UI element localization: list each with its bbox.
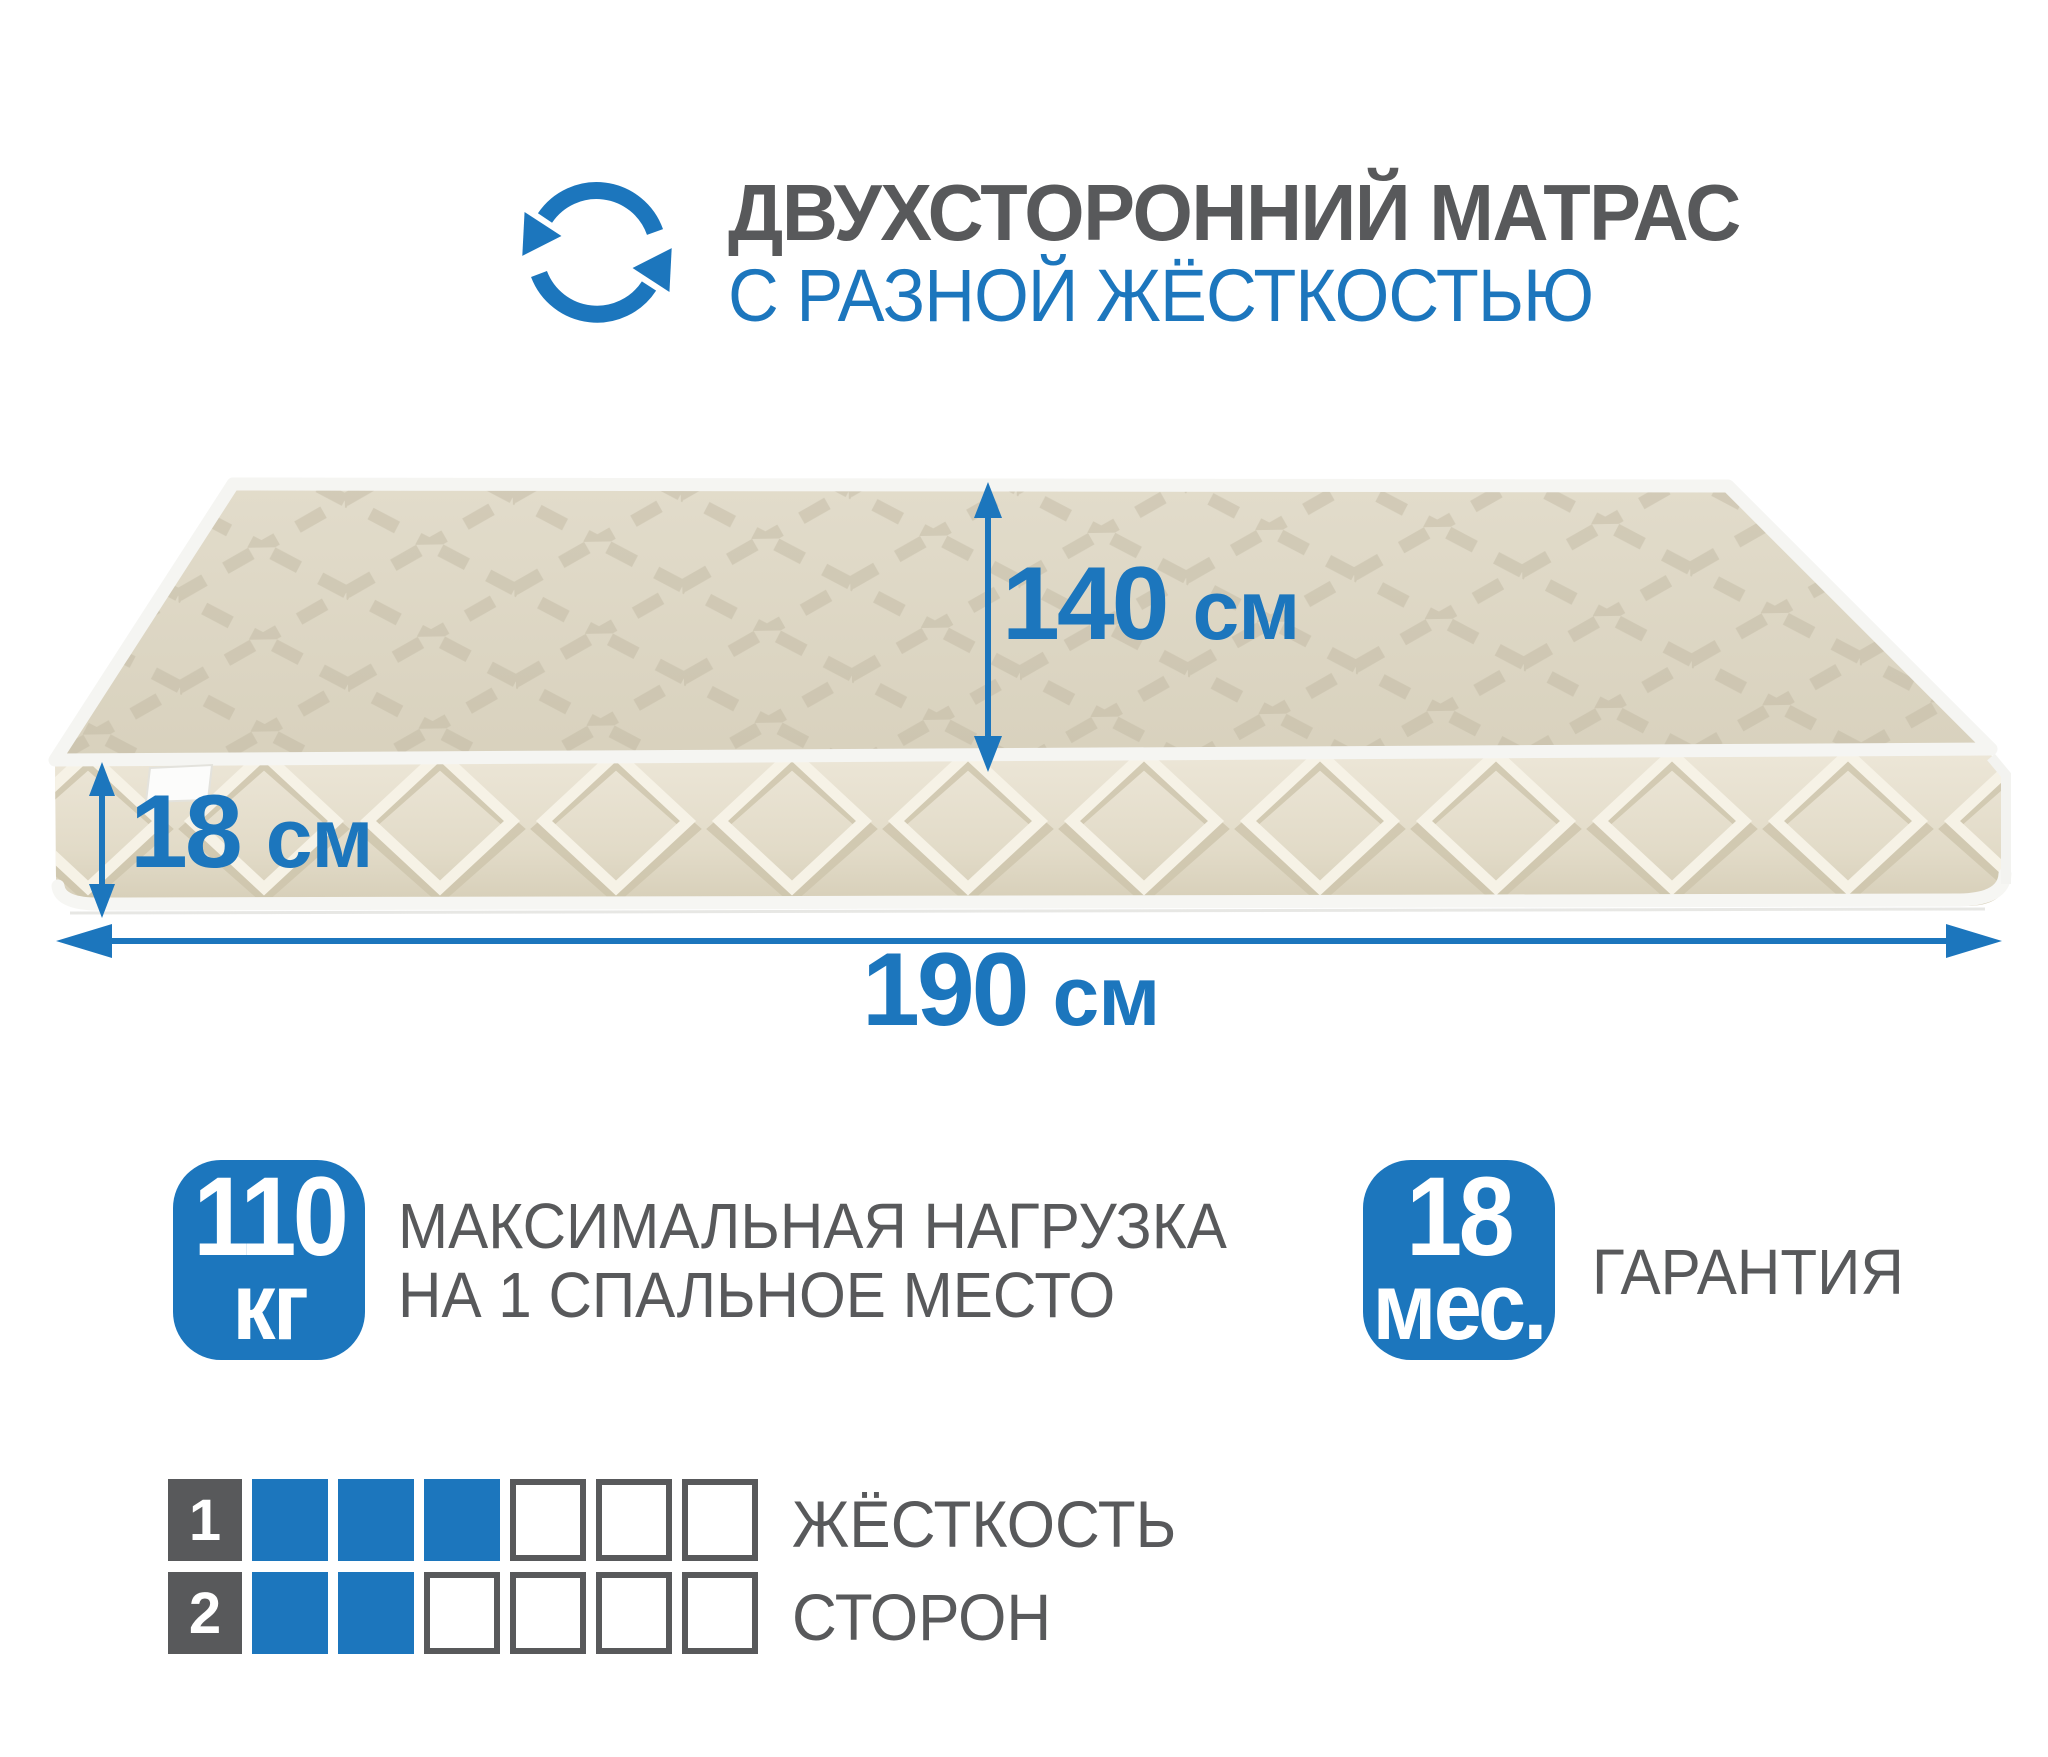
firmness-side-number: 1 [168,1479,242,1561]
max-load-badge: 110 кг [173,1160,365,1360]
firmness-row-side-2: 2 [168,1572,758,1654]
length-dimension-label: 190 см [862,926,1159,1054]
warranty-value: 18 [1373,1170,1545,1264]
length-unit: см [1053,948,1160,1045]
page-title: ДВУХСТОРОННИЙ МАТРАС [728,170,1740,256]
firmness-cell-empty [596,1572,672,1654]
width-unit: см [1193,562,1300,659]
height-unit: см [266,790,373,887]
firmness-cell-empty [682,1572,758,1654]
warranty-badge: 18 мес. [1363,1160,1555,1360]
firmness-row-side-1: 1 [168,1479,758,1561]
rotate-icon [505,172,690,332]
firmness-cell-filled [252,1479,328,1561]
width-dimension-label: 140 см [1002,540,1299,668]
firmness-cell-filled [252,1572,328,1654]
firmness-cells [252,1479,758,1561]
firmness-cells [252,1572,758,1654]
firmness-side-number: 2 [168,1572,242,1654]
width-value: 140 [1002,540,1167,668]
firmness-cell-empty [596,1479,672,1561]
max-load-value: 110 [193,1170,345,1264]
firmness-cell-empty [424,1572,500,1654]
page-subtitle: С РАЗНОЙ ЖЁСТКОСТЬЮ [728,256,1719,336]
header: ДВУХСТОРОННИЙ МАТРАС С РАЗНОЙ ЖЁСТКОСТЬЮ [728,170,1771,336]
firmness-cell-empty [510,1479,586,1561]
warranty-label: ГАРАНТИЯ [1592,1238,1904,1307]
firmness-cell-empty [682,1479,758,1561]
firmness-cell-filled [338,1572,414,1654]
firmness-cell-filled [338,1479,414,1561]
height-dimension-label: 18 см [130,768,373,896]
max-load-label: МАКСИМАЛЬНАЯ НАГРУЗКА НА 1 СПАЛЬНОЕ МЕСТ… [398,1192,1227,1330]
mattress-infographic: ДВУХСТОРОННИЙ МАТРАС С РАЗНОЙ ЖЁСТКОСТЬЮ… [0,0,2048,1757]
firmness-label: ЖЁСТКОСТЬ СТОРОН [792,1478,1176,1664]
firmness-cell-empty [510,1572,586,1654]
height-value: 18 [130,768,240,896]
length-value: 190 [862,926,1027,1054]
warranty-unit: мес. [1373,1264,1545,1350]
firmness-scale: 1 2 [168,1479,758,1654]
firmness-cell-filled [424,1479,500,1561]
